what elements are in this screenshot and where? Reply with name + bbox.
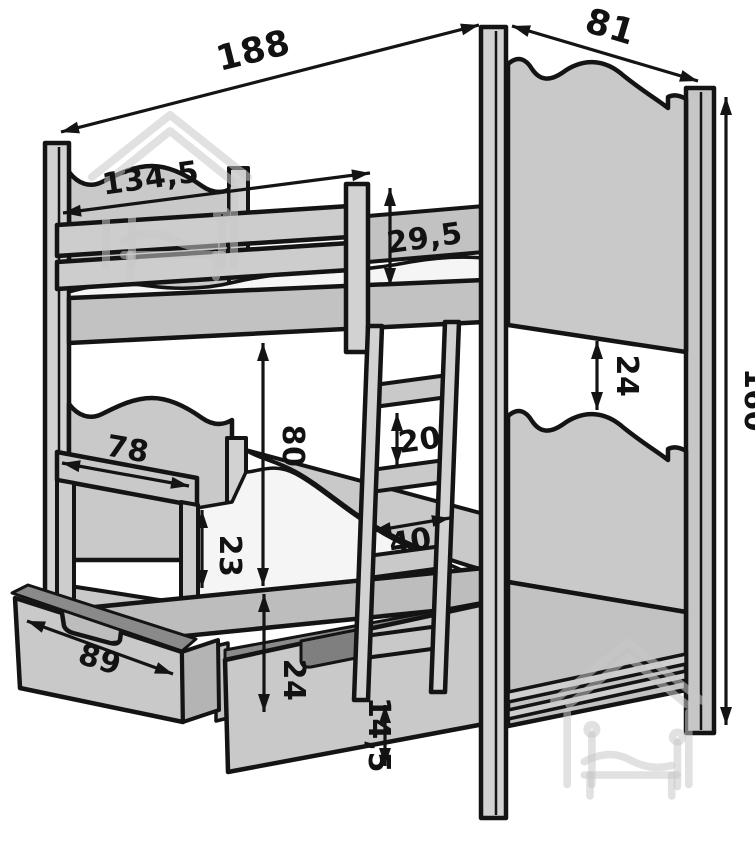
ladder-rung — [371, 460, 445, 492]
dim-overall-length: 188 — [61, 23, 479, 132]
drawer-left-side — [182, 640, 219, 722]
upper-headboard-right — [508, 59, 686, 352]
dim-label-lower-guardrail-height: 23 — [212, 535, 247, 578]
dim-drawer-front-height: 14,5 — [361, 697, 396, 773]
rear-right-post — [686, 88, 714, 733]
lower-frame-left-stile — [57, 480, 74, 610]
diagram-canvas: 188 81 160 134,5 29,5 24 80 20 — [0, 0, 755, 845]
dim-label-ladder-rung-gap: 20 — [396, 420, 443, 461]
dim-label-overall-depth: 81 — [581, 1, 640, 53]
dim-label-lower-guardrail-length: 78 — [104, 429, 152, 471]
dim-headboard-clearance: 24 — [597, 341, 644, 410]
dim-label-headboard-clearance: 24 — [609, 355, 644, 398]
dim-label-overall-height: 160 — [737, 368, 755, 432]
ladder-rung — [374, 375, 448, 407]
dim-label-overall-length: 188 — [212, 23, 294, 80]
dim-label-drawer-front-height: 14,5 — [361, 697, 396, 773]
dim-label-bunk-clearance: 80 — [275, 425, 310, 468]
dim-ladder-rung-gap: 20 — [396, 413, 443, 465]
dim-label-ladder-width: 40 — [387, 521, 435, 562]
upper-guardrail-end-post — [346, 184, 368, 352]
front-right-post — [481, 27, 506, 818]
lower-headboard-right — [508, 411, 686, 612]
bunk-bed-dimension-diagram: 188 81 160 134,5 29,5 24 80 20 — [0, 0, 755, 845]
dim-label-underbed-height: 24 — [276, 659, 311, 702]
dim-overall-height: 160 — [726, 97, 755, 725]
